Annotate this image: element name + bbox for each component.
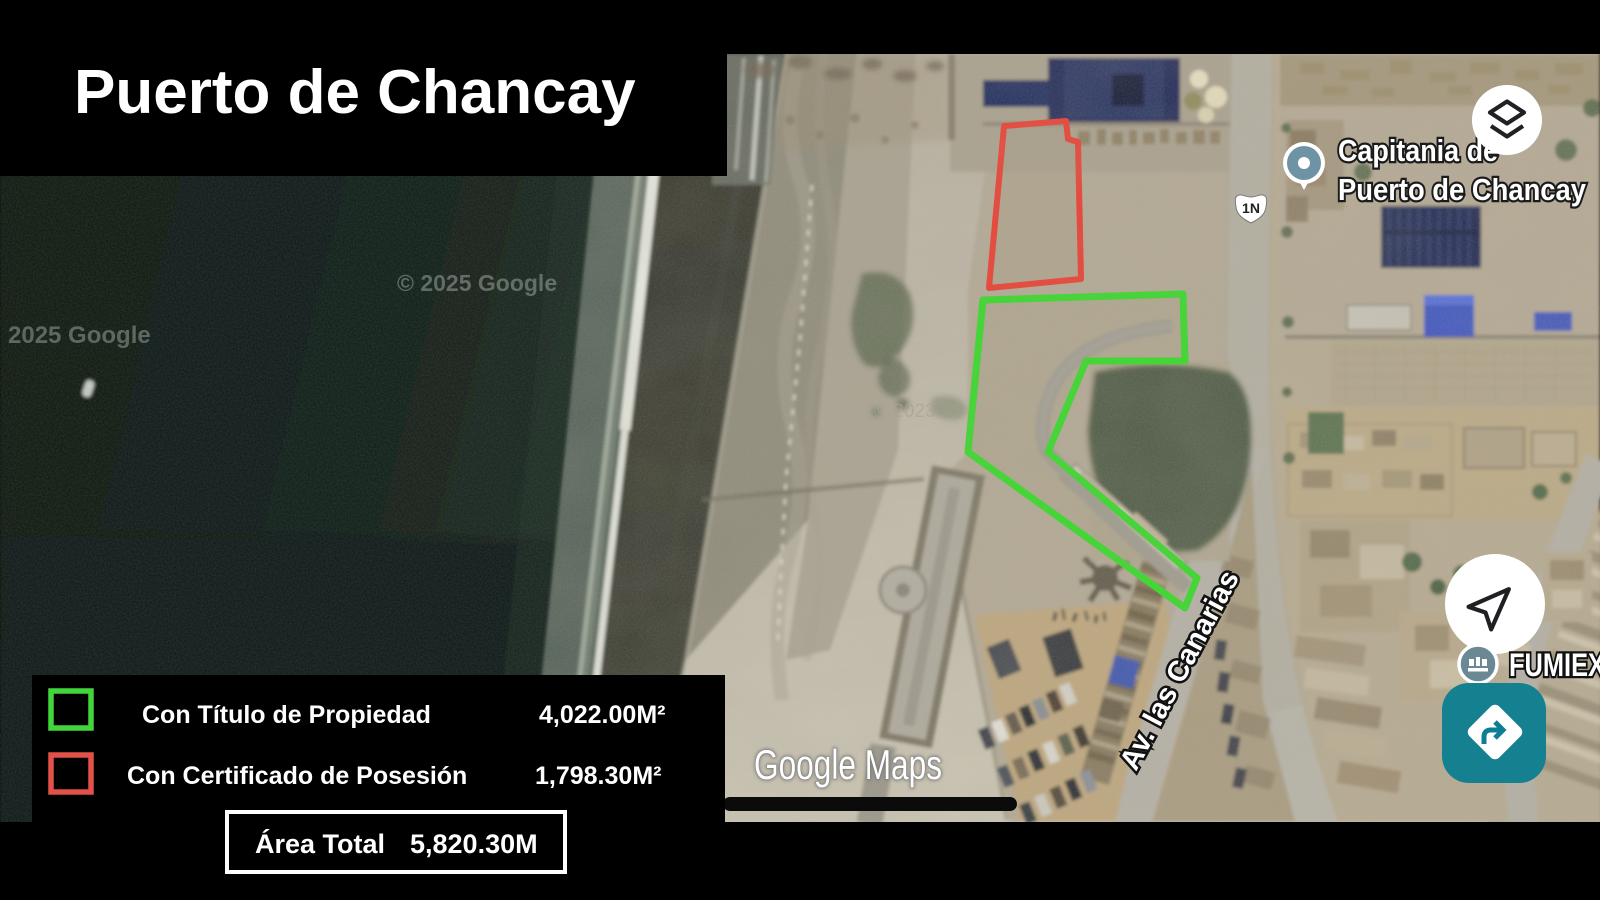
svg-text:Puerto de Chancay: Puerto de Chancay — [1338, 172, 1587, 207]
svg-text:1,798.30M²: 1,798.30M² — [535, 762, 661, 790]
svg-text:Google Maps: Google Maps — [754, 741, 942, 788]
svg-text:FUMIEX: FUMIEX — [1509, 647, 1600, 683]
svg-text:Con Título de Propiedad: Con Título de Propiedad — [142, 701, 431, 729]
svg-text:© 2023: © 2023 — [874, 401, 936, 422]
svg-text:Con Certificado de Posesión: Con Certificado de Posesión — [127, 762, 467, 790]
svg-text:Área Total: Área Total — [255, 828, 385, 859]
svg-text:1N: 1N — [1242, 200, 1260, 216]
svg-text:5,820.30M: 5,820.30M — [410, 829, 538, 859]
svg-text:© 2025 Google: © 2025 Google — [397, 270, 557, 296]
svg-text:4,022.00M²: 4,022.00M² — [539, 701, 665, 729]
svg-text:Puerto de Chancay: Puerto de Chancay — [74, 58, 636, 127]
svg-text:2025 Google: 2025 Google — [8, 322, 151, 349]
svg-text:Capitania de: Capitania de — [1338, 133, 1498, 168]
